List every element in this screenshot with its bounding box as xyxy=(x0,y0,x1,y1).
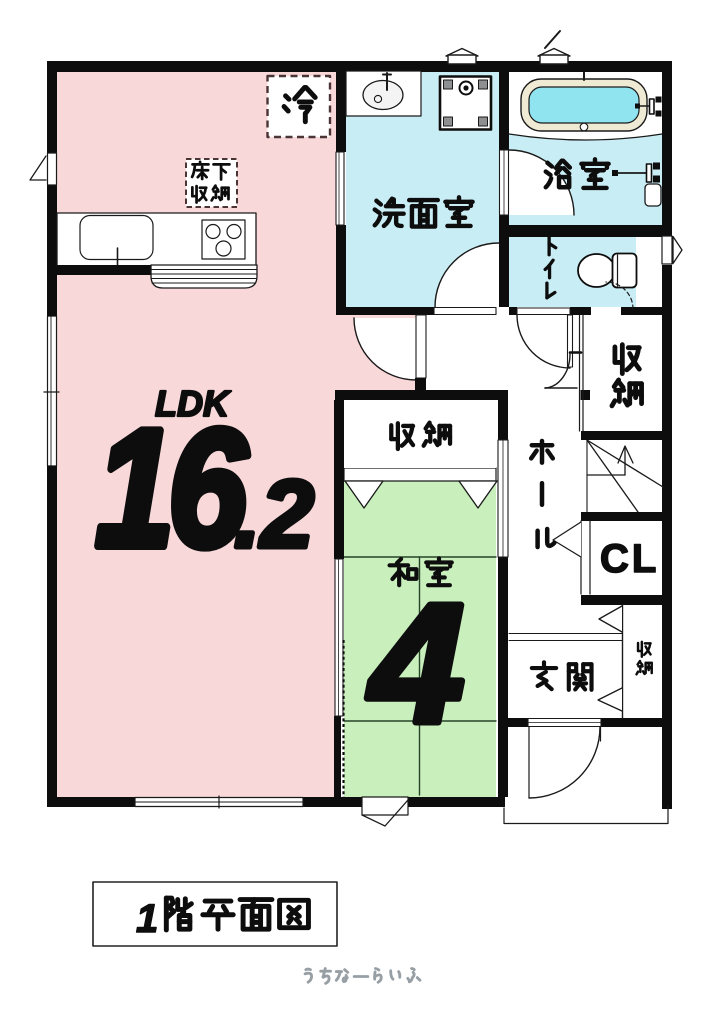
svg-text:.2: .2 xyxy=(234,461,314,568)
svg-text:1: 1 xyxy=(136,897,158,941)
svg-text:16: 16 xyxy=(95,395,248,582)
svg-text:4: 4 xyxy=(367,569,465,759)
svg-text:CL: CL xyxy=(600,537,659,581)
